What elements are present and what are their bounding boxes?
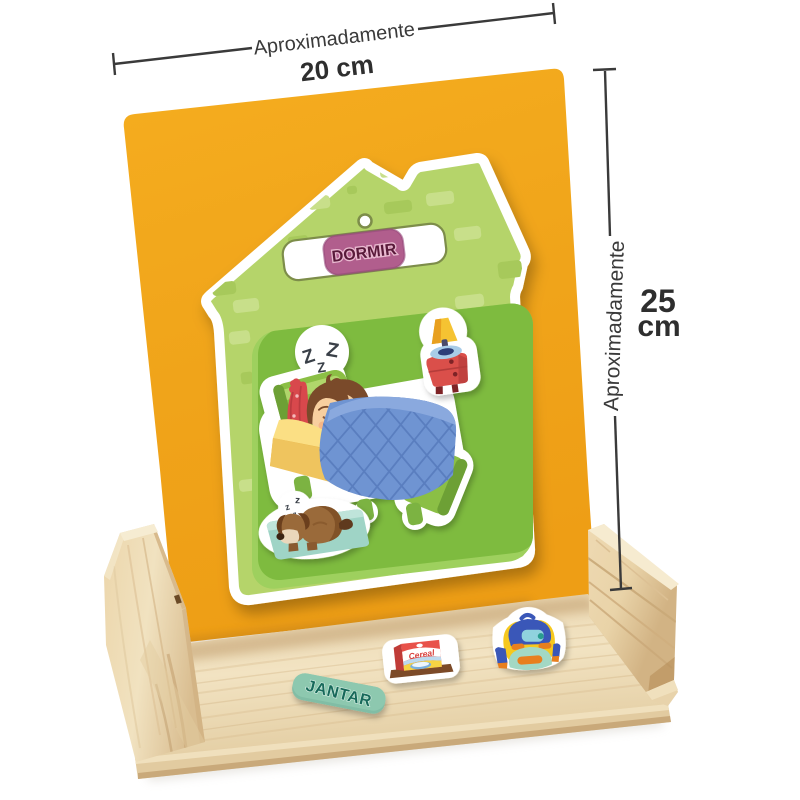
svg-text:cm: cm bbox=[637, 310, 680, 343]
svg-text:z: z bbox=[295, 495, 300, 506]
